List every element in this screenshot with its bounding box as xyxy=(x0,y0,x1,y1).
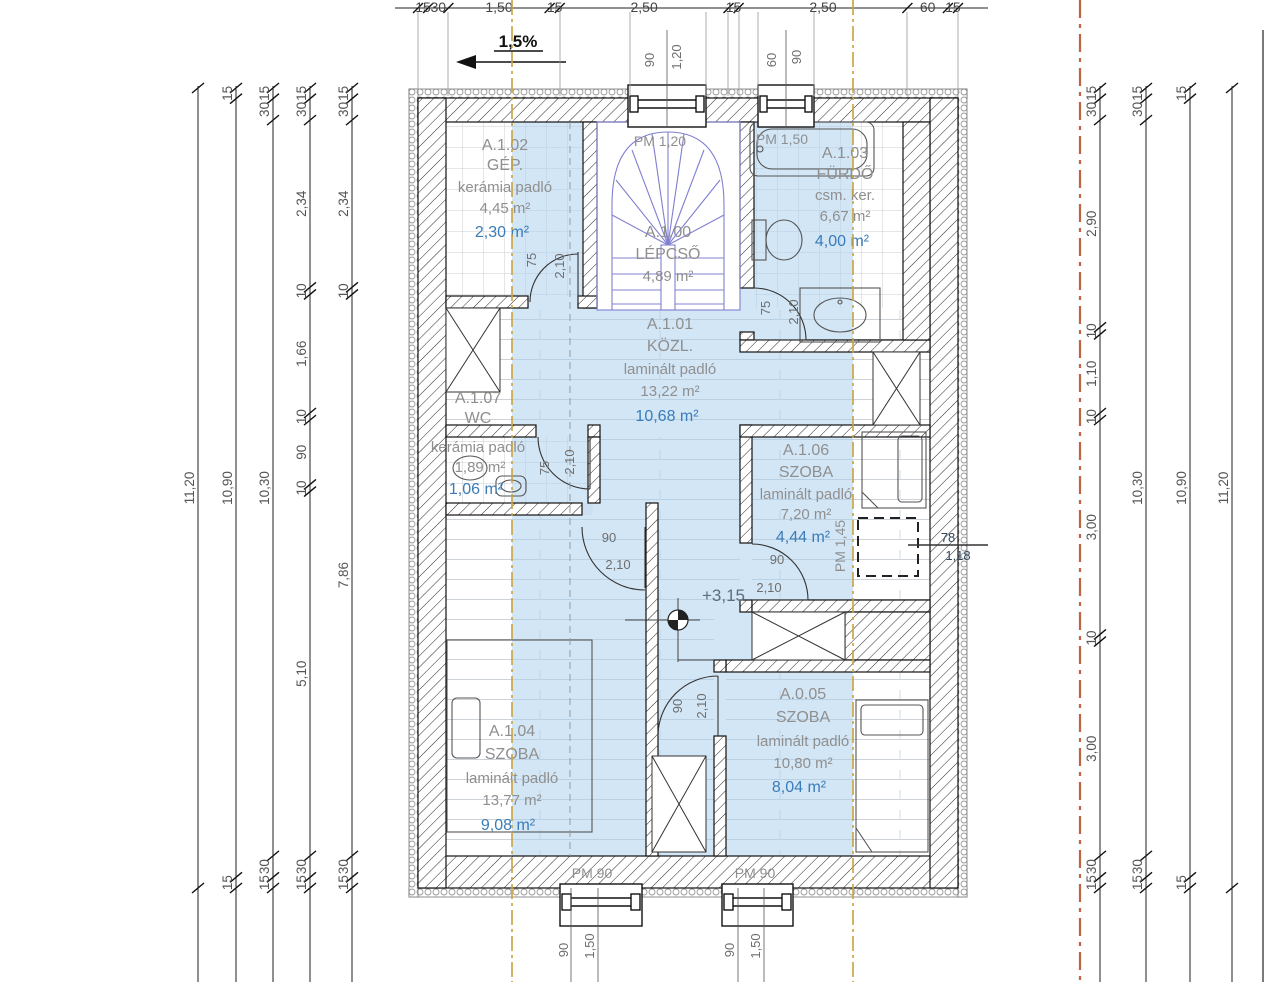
door-dim: 75 xyxy=(537,461,552,475)
dim-label: 10,30 xyxy=(257,471,272,505)
dim-label: 10,30 xyxy=(1130,471,1145,505)
room-id: A.1.06 xyxy=(783,442,829,459)
dim-label: 15 xyxy=(294,875,309,890)
dim-label: 10 xyxy=(294,480,309,495)
room-name: KÖZL. xyxy=(647,337,693,355)
dim-chain-vertical: 153010,303015 xyxy=(257,83,279,982)
door-dim: 2,10 xyxy=(605,557,630,572)
dim-label: 15 xyxy=(220,875,235,890)
dim-label: 10 xyxy=(294,283,309,298)
dim-label: 15 xyxy=(1130,875,1145,890)
room-id: A.1.02 xyxy=(482,137,528,154)
room-floor: kerámia padló xyxy=(458,179,552,196)
dim-label: 15 xyxy=(547,0,563,15)
room-name: GÉP. xyxy=(487,155,523,174)
pm-label-planned: PM 1,45 xyxy=(832,520,848,572)
dim-label: 10,90 xyxy=(220,471,235,505)
dim-label: 15 xyxy=(726,0,742,15)
room-floor: csm. ker. xyxy=(815,187,875,204)
dim-chain-vertical: 11,20 xyxy=(182,83,204,982)
dim-label: 1,50 xyxy=(485,0,512,15)
level-label: +3,15 xyxy=(702,586,745,605)
room-name: SZOBA xyxy=(776,709,831,726)
window-dim: 1,50 xyxy=(748,933,763,958)
slope-label: 1,5% xyxy=(499,32,538,51)
room-floor: laminált padló xyxy=(757,733,850,750)
door-dim: 2,10 xyxy=(552,253,567,278)
dim-chain-vertical: 15302,34107,863015 xyxy=(336,83,358,982)
room-area: 1,89 m² xyxy=(455,459,506,476)
room-floor: laminált padló xyxy=(624,361,717,378)
pm-label-bottom-1: PM 90 xyxy=(572,865,613,881)
dim-label: 10 xyxy=(294,409,309,424)
dim-label: 15 xyxy=(1174,875,1189,890)
room-area-reduced: 8,04 m² xyxy=(772,779,827,796)
room-name: LÉPCSŐ xyxy=(636,244,701,263)
dim-label: 11,20 xyxy=(1216,472,1231,505)
dim-label: 30 xyxy=(1130,859,1145,874)
dim-label: 11,20 xyxy=(182,472,197,505)
dim-chain-vertical: 11,20 xyxy=(1216,83,1238,982)
room-area-reduced: 1,06 m² xyxy=(449,481,504,498)
dim-label: 2,34 xyxy=(294,190,309,217)
pm-label-top-2: PM 1,50 xyxy=(756,131,808,147)
dim-label: 30 xyxy=(1130,102,1145,117)
dim-label: 30 xyxy=(294,102,309,117)
dim-label: 3,00 xyxy=(1084,514,1099,540)
room-id: A.0.05 xyxy=(780,686,826,703)
window-dim: 1,20 xyxy=(669,44,684,69)
room-area: 10,80 m² xyxy=(773,755,832,772)
shaft-center-right xyxy=(752,612,845,660)
room-floor: laminált padló xyxy=(760,486,853,503)
dim-label: 15 xyxy=(1084,86,1099,101)
room-area-reduced: 4,44 m² xyxy=(776,529,831,546)
dim-label: 15 xyxy=(257,86,272,101)
window-dim: 1,50 xyxy=(582,933,597,958)
dim-label: 30 xyxy=(257,859,272,874)
shaft-bottom-center xyxy=(652,756,706,852)
dim-label: 10 xyxy=(336,283,351,298)
dim-label: 1,10 xyxy=(1084,361,1099,387)
dim-chain-vertical: 15302,34101,661090105,103015 xyxy=(294,83,316,982)
room-id: A.1.01 xyxy=(647,316,693,333)
room-area-reduced: 10,68 m² xyxy=(635,408,699,425)
floor-plan-page: GDN xyxy=(0,0,1280,982)
dim-label: 15 xyxy=(336,875,351,890)
dim-label: 2,90 xyxy=(1084,211,1099,237)
dim-label: 2,34 xyxy=(336,190,351,217)
floor-plan-drawing: GDN xyxy=(0,0,1280,982)
room-a100: A.1.00 LÉPCSŐ 4,89 m² xyxy=(636,224,701,285)
room-name: FÜRDŐ xyxy=(817,164,874,183)
dim-label: 15 xyxy=(1130,86,1145,101)
door-dim: 75 xyxy=(758,301,773,315)
dim-label: 30 xyxy=(336,102,351,117)
shaft-right-mid xyxy=(873,352,920,425)
room-area: 4,45 m² xyxy=(480,200,531,217)
window-dim: 90 xyxy=(556,943,571,957)
room-area: 4,89 m² xyxy=(643,268,694,285)
window-bottom-2 xyxy=(722,884,793,926)
dim-label: 10 xyxy=(1084,630,1099,645)
dim-label: 10 xyxy=(1084,409,1099,424)
dim-label: 30 xyxy=(430,0,446,15)
dim-label: 30 xyxy=(1084,859,1099,874)
dim-chain-vertical: 1510,9015 xyxy=(220,83,242,982)
dim-label: 2,50 xyxy=(631,0,658,15)
room-a103: A.1.03 FÜRDŐ csm. ker. 6,67 m² 4,00 m² xyxy=(815,145,875,250)
shaft-left xyxy=(446,308,500,392)
window-dim: 90 xyxy=(642,53,657,67)
pm-label-top-1: PM 1,20 xyxy=(634,133,686,149)
planned-window-dim-w: 78 xyxy=(941,530,955,545)
dim-label: 15 xyxy=(294,86,309,101)
room-id: A.1.07 xyxy=(455,390,501,407)
room-area-reduced: 4,00 m² xyxy=(815,233,870,250)
dim-label: 60 xyxy=(920,0,936,15)
room-area: 6,67 m² xyxy=(820,208,871,225)
dim-label: 15 xyxy=(1174,86,1189,101)
room-area: 7,20 m² xyxy=(781,506,832,523)
dim-label: 15 xyxy=(336,86,351,101)
dim-label: 15 xyxy=(415,0,431,15)
dim-chain-vertical: 153010,303015 xyxy=(1130,83,1152,982)
room-name: WC xyxy=(465,410,492,427)
planned-window-dim-h: 1,18 xyxy=(945,548,970,563)
door-dim: 90 xyxy=(670,699,685,713)
window-dim: 60 xyxy=(764,53,779,67)
dim-chain-top: 15301,50152,50152,506015 xyxy=(395,0,988,15)
dim-label: 15 xyxy=(1084,875,1099,890)
dim-label: 15 xyxy=(257,875,272,890)
dim-label: 90 xyxy=(294,445,309,460)
door-dim: 2,10 xyxy=(562,449,577,474)
door-dim: 75 xyxy=(524,253,539,267)
window-dim: 90 xyxy=(722,943,737,957)
room-area-reduced: 9,08 m² xyxy=(481,817,536,834)
room-area: 13,22 m² xyxy=(640,383,699,400)
room-id: A.1.00 xyxy=(645,224,691,241)
dim-chain-vertical: 1510,9015 xyxy=(1174,83,1196,982)
dim-label: 30 xyxy=(1084,102,1099,117)
pm-label-bottom-2: PM 90 xyxy=(735,865,776,881)
slope-arrow: 1,5% xyxy=(456,32,566,69)
door-dim: 2,10 xyxy=(786,299,801,324)
window-bottom-1 xyxy=(560,884,642,926)
dim-label: 5,10 xyxy=(294,661,309,687)
door-dim: 90 xyxy=(602,530,616,545)
dim-label: 2,50 xyxy=(809,0,836,15)
room-area-reduced: 2,30 m² xyxy=(475,224,530,241)
door-dim: 90 xyxy=(770,552,784,567)
room-name: SZOBA xyxy=(779,464,834,481)
dim-label: 15 xyxy=(945,0,961,15)
dim-chain-vertical: 15302,90101,10103,00103,003015 xyxy=(1084,83,1106,982)
dim-label: 10 xyxy=(1084,323,1099,338)
window-dim: 90 xyxy=(789,50,804,64)
door-dim: 2,10 xyxy=(694,693,709,718)
dim-label: 10,90 xyxy=(1174,471,1189,505)
dim-label: 1,66 xyxy=(294,341,309,367)
room-id: A.1.03 xyxy=(822,145,868,162)
dim-label: 15 xyxy=(220,86,235,101)
room-floor: kerámia padló xyxy=(431,439,525,456)
dim-label: 7,86 xyxy=(336,562,351,588)
dim-label: 3,00 xyxy=(1084,736,1099,762)
dim-label: 30 xyxy=(257,102,272,117)
dim-label: 30 xyxy=(336,859,351,874)
dim-label: 30 xyxy=(294,859,309,874)
door-dim: 2,10 xyxy=(756,580,781,595)
